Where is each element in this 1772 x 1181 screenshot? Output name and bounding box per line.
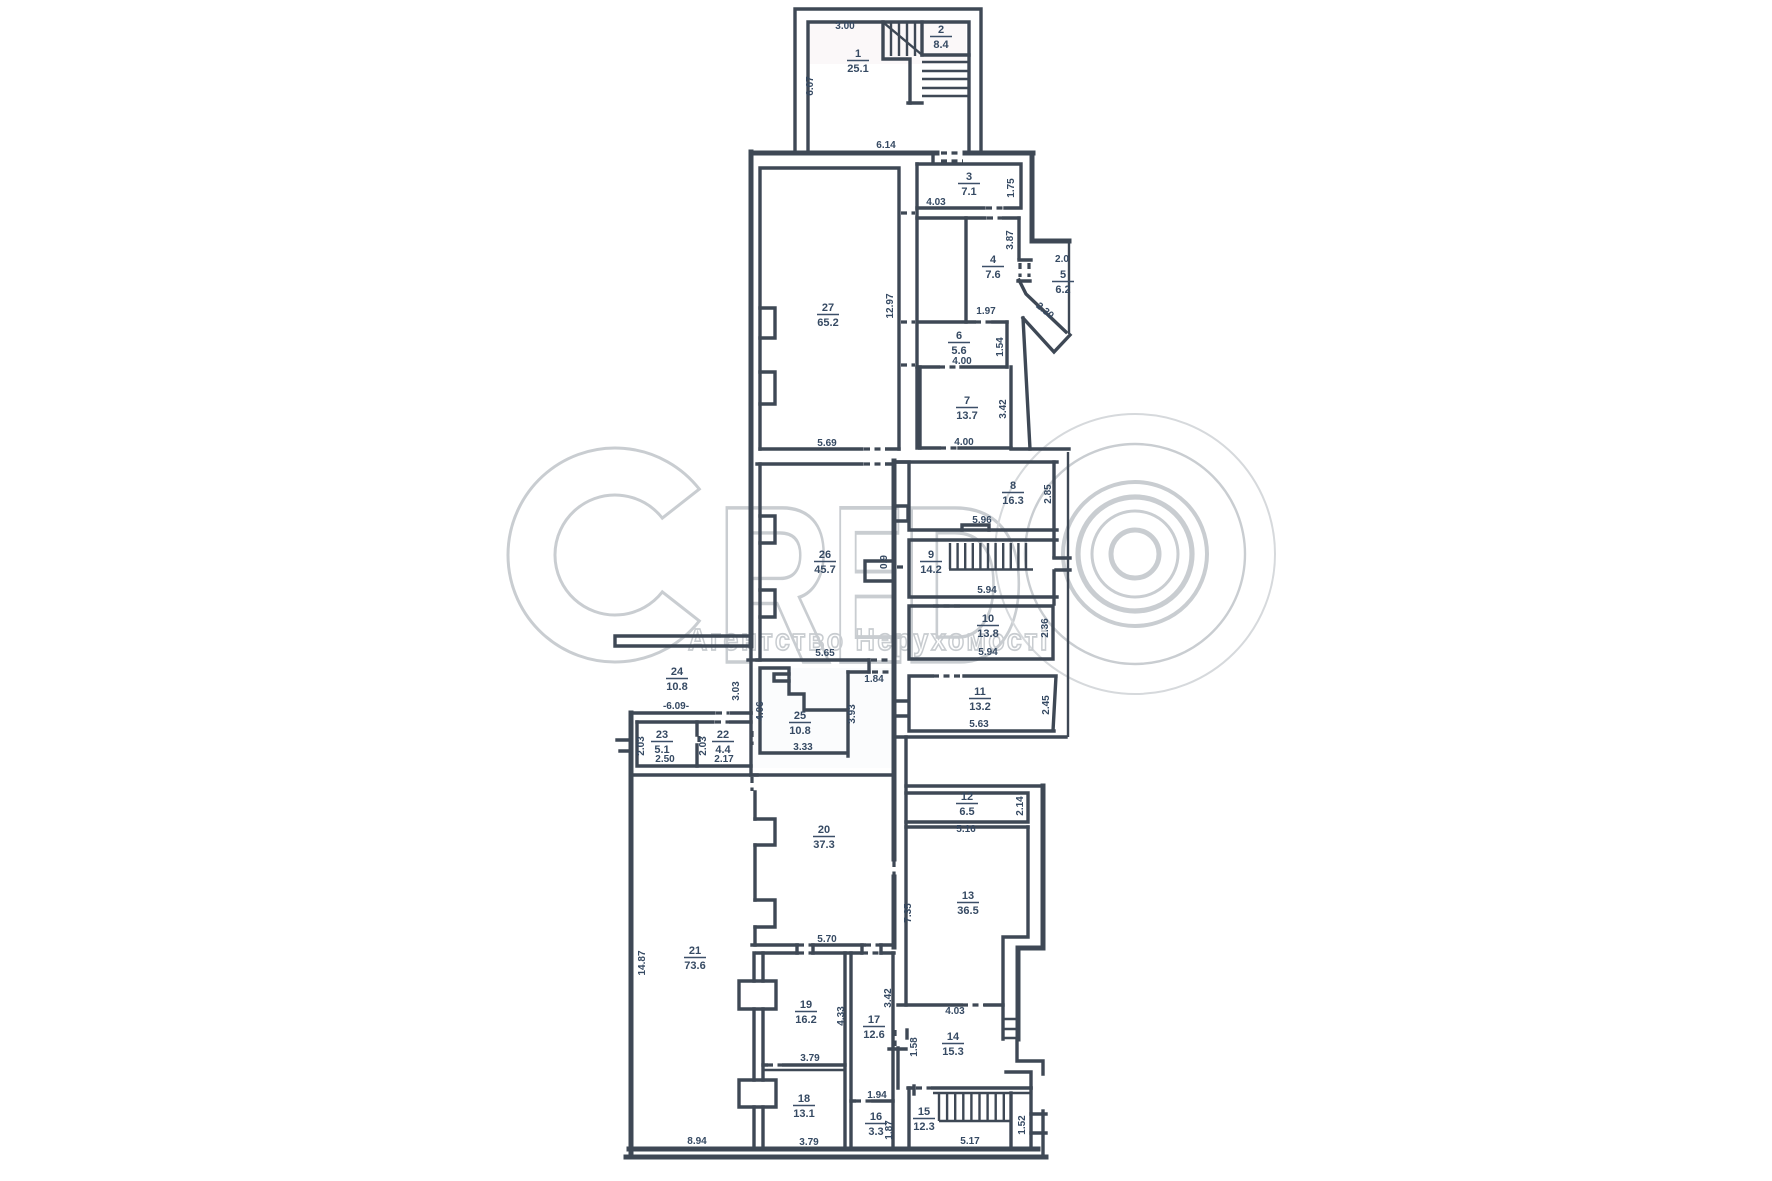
svg-text:5.96: 5.96	[972, 515, 992, 526]
svg-text:13.2: 13.2	[969, 701, 990, 713]
svg-text:26: 26	[819, 549, 831, 561]
svg-text:3.00: 3.00	[835, 21, 855, 32]
svg-text:1.97: 1.97	[976, 306, 996, 317]
svg-text:7.35: 7.35	[903, 903, 914, 923]
svg-text:3.03: 3.03	[731, 681, 742, 701]
svg-text:1.58: 1.58	[909, 1037, 920, 1057]
svg-text:10.8: 10.8	[789, 725, 810, 737]
svg-text:2.03: 2.03	[636, 736, 647, 756]
svg-text:4.03: 4.03	[926, 197, 946, 208]
svg-text:5.69: 5.69	[817, 438, 837, 449]
svg-text:5.94: 5.94	[977, 585, 997, 596]
svg-text:12.6: 12.6	[863, 1029, 884, 1041]
svg-text:14.87: 14.87	[637, 950, 648, 975]
svg-text:11: 11	[974, 686, 986, 698]
svg-text:1.75: 1.75	[1006, 178, 1017, 198]
svg-text:18: 18	[798, 1093, 810, 1105]
svg-text:25.1: 25.1	[847, 63, 868, 75]
svg-text:14: 14	[947, 1031, 960, 1043]
svg-text:5: 5	[1060, 269, 1066, 281]
svg-text:6.2: 6.2	[1055, 284, 1070, 296]
svg-text:3: 3	[966, 171, 972, 183]
svg-text:7.1: 7.1	[961, 186, 976, 198]
svg-text:3.79: 3.79	[800, 1053, 820, 1064]
svg-text:3.79: 3.79	[799, 1137, 819, 1148]
svg-text:5.16: 5.16	[956, 824, 976, 835]
svg-text:2.50: 2.50	[655, 754, 675, 765]
svg-text:12.3: 12.3	[913, 1121, 934, 1133]
svg-text:16.3: 16.3	[1002, 495, 1023, 507]
svg-text:6: 6	[956, 330, 962, 342]
svg-text:0.9: 0.9	[879, 555, 890, 569]
svg-text:13.1: 13.1	[793, 1108, 814, 1120]
svg-text:16: 16	[870, 1111, 882, 1123]
svg-text:10.8: 10.8	[666, 681, 687, 693]
svg-text:5.70: 5.70	[817, 934, 837, 945]
svg-text:4: 4	[990, 254, 997, 266]
svg-text:13.8: 13.8	[977, 628, 998, 640]
svg-text:2.14: 2.14	[1015, 796, 1026, 816]
svg-text:3.3: 3.3	[868, 1126, 883, 1138]
svg-text:23: 23	[656, 729, 668, 741]
svg-text:5.94: 5.94	[978, 647, 998, 658]
svg-text:4.00: 4.00	[954, 437, 974, 448]
svg-text:2.03: 2.03	[698, 736, 709, 756]
svg-text:4.06: 4.06	[755, 701, 766, 721]
svg-text:4.03: 4.03	[945, 1006, 965, 1017]
svg-text:16.2: 16.2	[795, 1014, 816, 1026]
svg-text:1.87: 1.87	[884, 1120, 895, 1140]
svg-text:13.7: 13.7	[956, 410, 977, 422]
svg-text:1.54: 1.54	[995, 337, 1006, 357]
svg-text:2.85: 2.85	[1043, 484, 1054, 504]
svg-text:65.2: 65.2	[817, 317, 838, 329]
svg-text:22: 22	[717, 729, 729, 741]
svg-text:1.52: 1.52	[1017, 1115, 1028, 1135]
svg-text:2: 2	[938, 24, 944, 36]
svg-text:17: 17	[868, 1014, 880, 1026]
svg-text:12.97: 12.97	[885, 293, 896, 318]
svg-text:25: 25	[794, 710, 806, 722]
svg-text:9: 9	[928, 549, 934, 561]
svg-text:15: 15	[918, 1106, 930, 1118]
svg-text:8.4: 8.4	[933, 39, 949, 51]
svg-text:45.7: 45.7	[814, 564, 835, 576]
svg-text:15.3: 15.3	[942, 1046, 963, 1058]
svg-text:-6.09-: -6.09-	[663, 701, 689, 712]
svg-text:6.5: 6.5	[959, 806, 974, 818]
svg-text:6.14: 6.14	[876, 140, 896, 151]
svg-text:8.94: 8.94	[687, 1136, 707, 1147]
svg-text:73.6: 73.6	[684, 960, 705, 972]
svg-text:2.17: 2.17	[714, 754, 734, 765]
svg-text:3.93: 3.93	[847, 704, 858, 724]
svg-text:24: 24	[671, 666, 684, 678]
svg-text:3.87: 3.87	[1005, 230, 1016, 250]
svg-text:1.84: 1.84	[864, 674, 884, 685]
svg-text:1.94: 1.94	[867, 1090, 887, 1101]
svg-text:19: 19	[800, 999, 812, 1011]
svg-text:27: 27	[822, 302, 834, 314]
svg-text:36.5: 36.5	[957, 905, 978, 917]
svg-text:2.0: 2.0	[1055, 254, 1069, 265]
svg-text:4.00: 4.00	[952, 356, 972, 367]
svg-text:21: 21	[689, 945, 701, 957]
svg-text:3.33: 3.33	[793, 742, 813, 753]
svg-text:6.07: 6.07	[805, 76, 816, 96]
svg-text:2.36: 2.36	[1040, 618, 1051, 638]
svg-text:5.17: 5.17	[960, 1136, 980, 1147]
svg-text:4.33: 4.33	[836, 1006, 847, 1026]
svg-text:3.42: 3.42	[998, 399, 1009, 419]
svg-text:7: 7	[964, 395, 970, 407]
svg-text:1: 1	[855, 48, 861, 60]
svg-text:8: 8	[1010, 480, 1016, 492]
svg-text:12: 12	[961, 791, 973, 803]
svg-text:5.65: 5.65	[815, 648, 835, 659]
svg-text:5.63: 5.63	[969, 719, 989, 730]
svg-text:7.6: 7.6	[985, 269, 1000, 281]
svg-text:10: 10	[982, 613, 994, 625]
svg-text:13: 13	[962, 890, 974, 902]
svg-text:14.2: 14.2	[920, 564, 941, 576]
svg-text:2.45: 2.45	[1041, 695, 1052, 715]
svg-text:37.3: 37.3	[813, 839, 834, 851]
svg-text:3.42: 3.42	[883, 988, 894, 1008]
svg-text:20: 20	[818, 824, 830, 836]
